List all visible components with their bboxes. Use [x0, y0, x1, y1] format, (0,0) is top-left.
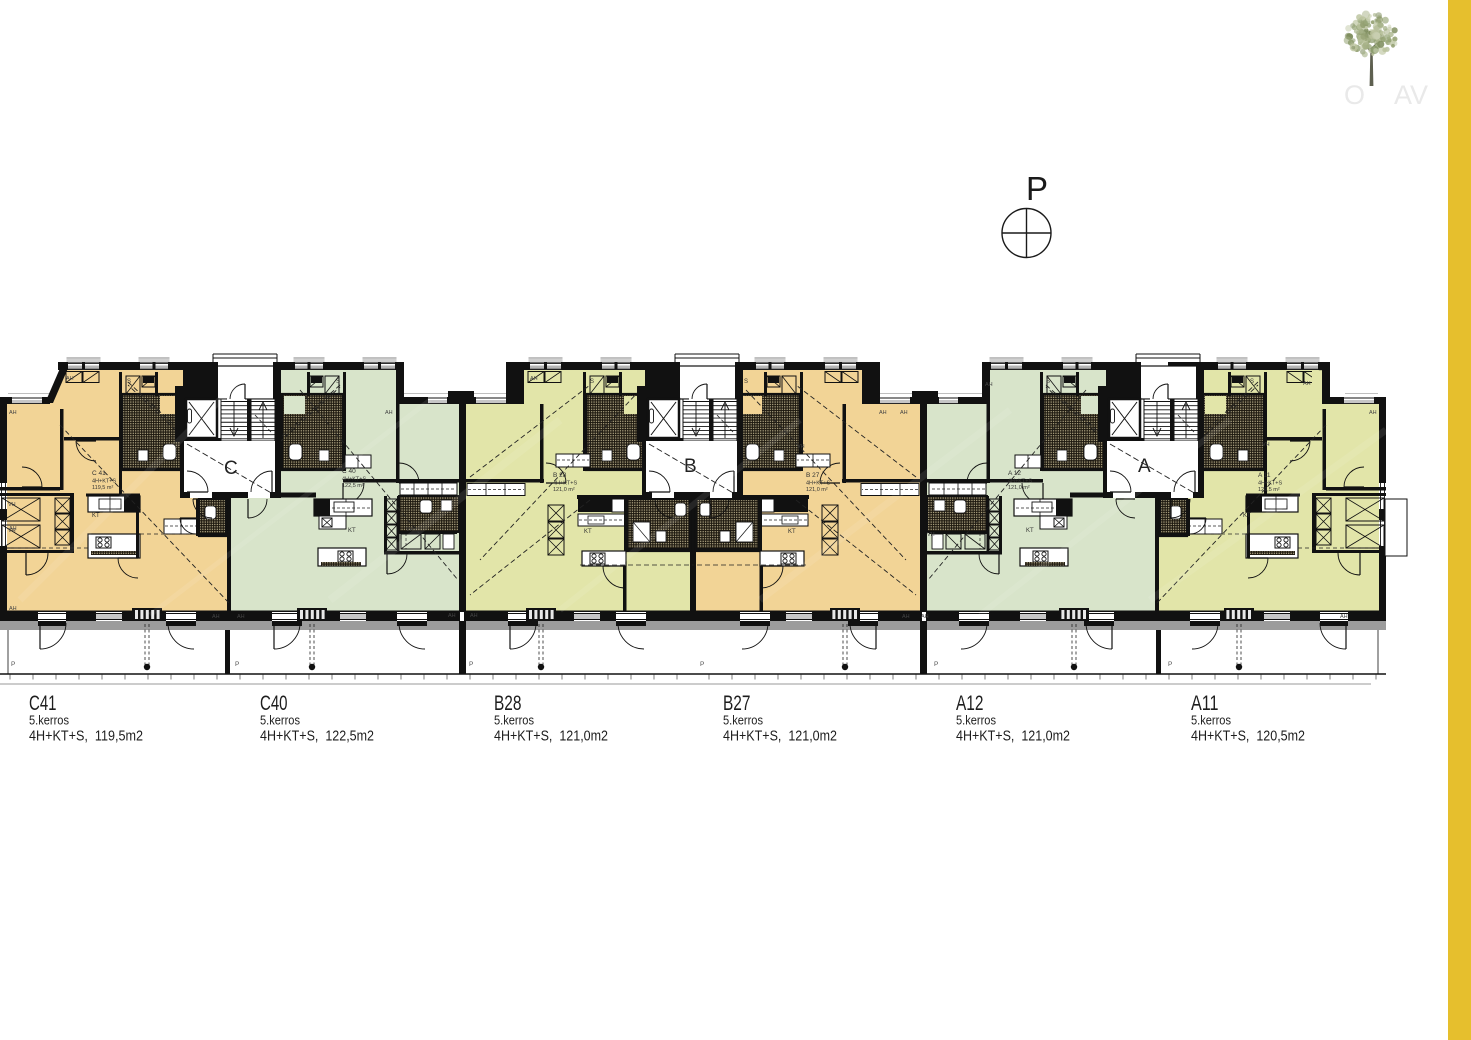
svg-text:AH: AH: [237, 614, 245, 620]
svg-text:AH: AH: [212, 614, 220, 620]
svg-text:S: S: [127, 379, 131, 385]
svg-text:121,0 m²: 121,0 m²: [1008, 485, 1030, 491]
svg-text:VH: VH: [797, 444, 805, 450]
svg-text:KT: KT: [1026, 528, 1034, 534]
svg-text:S: S: [1250, 379, 1254, 385]
svg-text:AH: AH: [66, 376, 74, 382]
svg-text:4H+KT+S, 122,5m2: 4H+KT+S, 122,5m2: [260, 729, 374, 745]
svg-text:AH: AH: [470, 613, 478, 619]
svg-text:4H+KT+S, 121,0m2: 4H+KT+S, 121,0m2: [723, 729, 837, 745]
svg-text:P: P: [934, 661, 938, 668]
svg-text:AH: AH: [530, 376, 538, 382]
svg-text:4H+KT+S, 119,5m2: 4H+KT+S, 119,5m2: [29, 729, 143, 745]
svg-text:5.kerros: 5.kerros: [494, 713, 534, 728]
svg-text:A 12: A 12: [1008, 470, 1021, 477]
svg-text:5.kerros: 5.kerros: [723, 713, 763, 728]
svg-text:P: P: [1168, 661, 1172, 668]
svg-text:AV: AV: [1394, 80, 1428, 110]
svg-text:VH: VH: [8, 528, 16, 534]
svg-text:S: S: [336, 379, 340, 385]
svg-text:VH: VH: [8, 502, 16, 508]
svg-text:VH: VH: [406, 527, 414, 533]
svg-text:AH: AH: [985, 382, 993, 388]
svg-text:5.kerros: 5.kerros: [1191, 713, 1231, 728]
svg-text:O: O: [1344, 80, 1365, 110]
svg-text:B 27: B 27: [806, 472, 820, 479]
svg-text:121,0 m²: 121,0 m²: [806, 487, 828, 493]
svg-text:KT: KT: [788, 529, 796, 535]
svg-text:S: S: [590, 379, 594, 385]
svg-text:4H+KT+S: 4H+KT+S: [92, 479, 116, 485]
svg-text:C: C: [224, 458, 238, 479]
svg-text:P: P: [700, 661, 704, 668]
svg-text:A: A: [1138, 456, 1151, 477]
svg-text:120,5 m²: 120,5 m²: [1258, 487, 1280, 493]
svg-text:122,5 m²: 122,5 m²: [342, 483, 364, 489]
svg-text:P: P: [469, 661, 473, 668]
svg-text:VH: VH: [927, 532, 935, 538]
svg-text:4H+KT+S: 4H+KT+S: [1258, 481, 1282, 487]
svg-text:AH: AH: [902, 614, 910, 620]
svg-text:P: P: [1026, 170, 1048, 207]
svg-text:VH: VH: [1262, 442, 1270, 448]
svg-text:P: P: [235, 661, 239, 668]
svg-text:4H+KT+S, 121,0m2: 4H+KT+S, 121,0m2: [494, 729, 608, 745]
svg-text:AH: AH: [1340, 614, 1348, 620]
svg-text:5.kerros: 5.kerros: [956, 713, 996, 728]
svg-text:B: B: [684, 456, 697, 477]
svg-text:AH: AH: [9, 606, 17, 612]
svg-text:KT: KT: [1243, 513, 1251, 519]
svg-text:4H+KT+S: 4H+KT+S: [1008, 479, 1032, 485]
svg-text:P: P: [11, 661, 15, 668]
svg-text:4H+KT+S: 4H+KT+S: [342, 477, 366, 483]
svg-text:4H+KT+S: 4H+KT+S: [806, 481, 830, 487]
svg-text:A 11: A 11: [1258, 472, 1271, 479]
svg-text:AH: AH: [1369, 410, 1377, 416]
svg-text:KT: KT: [584, 529, 592, 535]
svg-text:121,0 m²: 121,0 m²: [553, 487, 575, 493]
svg-text:KT: KT: [348, 528, 356, 534]
svg-text:AH: AH: [1303, 381, 1311, 387]
svg-text:AH: AH: [879, 410, 887, 416]
svg-text:C 40: C 40: [342, 468, 356, 475]
svg-text:S: S: [1046, 379, 1050, 385]
svg-text:B 28: B 28: [553, 472, 567, 479]
svg-text:AH: AH: [921, 614, 929, 620]
svg-text:KT: KT: [92, 513, 100, 519]
svg-text:5.kerros: 5.kerros: [29, 713, 69, 728]
svg-text:AH: AH: [9, 410, 17, 416]
svg-text:119,5 m²: 119,5 m²: [92, 485, 113, 491]
svg-text:S: S: [744, 379, 748, 385]
svg-text:C 41: C 41: [92, 470, 106, 477]
svg-text:AH: AH: [448, 613, 456, 619]
svg-text:4H+KT+S, 121,0m2: 4H+KT+S, 121,0m2: [956, 729, 1070, 745]
svg-text:AH: AH: [385, 410, 393, 416]
svg-text:AH: AH: [900, 410, 908, 416]
svg-text:5.kerros: 5.kerros: [260, 713, 300, 728]
svg-text:4H+KT+S: 4H+KT+S: [553, 481, 577, 487]
svg-text:4H+KT+S, 120,5m2: 4H+KT+S, 120,5m2: [1191, 729, 1305, 745]
